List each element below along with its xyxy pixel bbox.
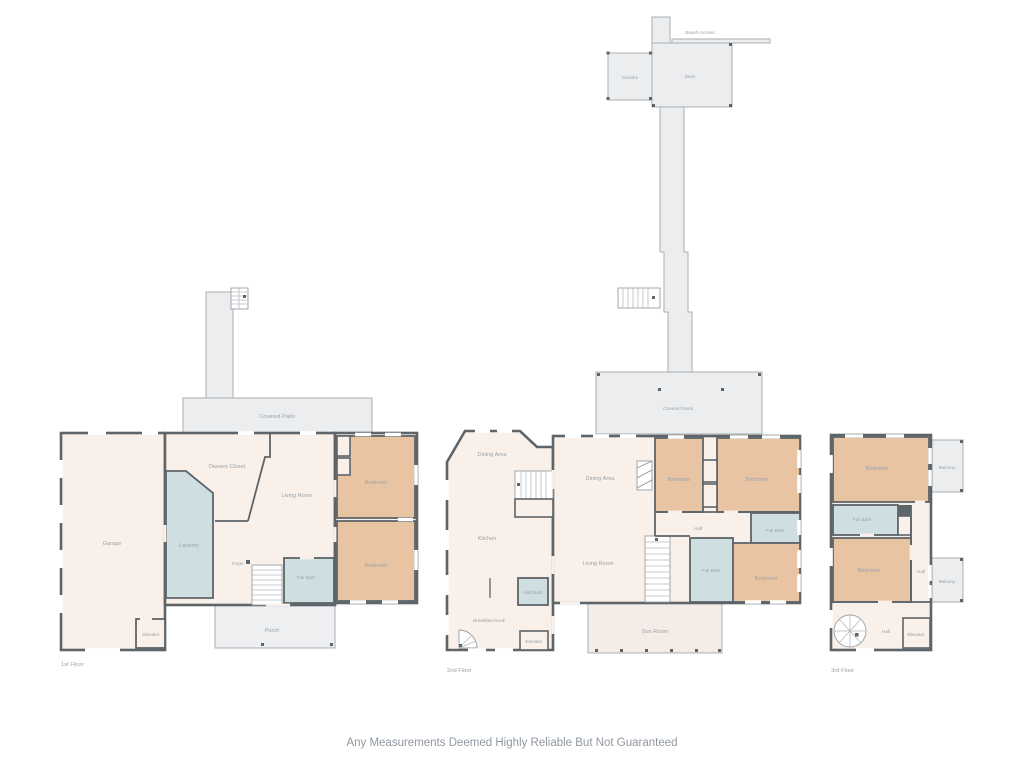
- foyer-label: Foyer: [232, 561, 244, 566]
- hall-label: Hall: [694, 526, 702, 531]
- balcony-post: [960, 599, 963, 602]
- bedroom-bottom-room: [733, 543, 800, 602]
- dining-area-label: Dining Area: [586, 476, 616, 482]
- elevator-label: Elevator: [525, 639, 543, 644]
- deck-label: Deck: [685, 74, 696, 79]
- deck-post: [649, 52, 652, 55]
- deck-post: [649, 97, 652, 100]
- bedroom-right-room: [717, 438, 800, 512]
- bedroom-label: Bedroom: [365, 480, 388, 486]
- fireplace: [637, 461, 652, 490]
- porch-post: [261, 643, 264, 646]
- sunroom-post: [620, 649, 623, 652]
- spiral-staircase: [834, 615, 866, 647]
- staircase: [252, 565, 282, 605]
- walkway-stair: [618, 288, 660, 308]
- floor2-name: 2nd Floor: [447, 668, 472, 674]
- sunroom-post: [695, 649, 698, 652]
- garage-label: Garage: [103, 541, 122, 547]
- beach-access-walk: [652, 17, 670, 45]
- deck-post: [652, 104, 655, 107]
- porch-label: Porch: [265, 628, 280, 634]
- laundry-room: [166, 471, 213, 598]
- sunroom-post: [595, 649, 598, 652]
- center-staircase: [645, 536, 670, 602]
- deck-post: [729, 43, 732, 46]
- closet: [703, 484, 717, 507]
- full-bath-room: [284, 558, 334, 603]
- balcony-post: [960, 489, 963, 492]
- balcony-top-label: Balcony: [939, 465, 956, 470]
- balcony-post: [960, 558, 963, 561]
- deck-walkway: [660, 107, 692, 374]
- hall-right-label: Hall: [917, 569, 925, 574]
- sun-room-label: Sun Room: [642, 629, 669, 635]
- deck-post: [607, 97, 610, 100]
- patio-walkway: [206, 292, 233, 399]
- beach-path: [672, 39, 770, 43]
- breakfast-nook-label: Breakfast Nook: [473, 618, 506, 623]
- sunroom-post: [718, 649, 721, 652]
- third-floor-plan: Bedroom Balcony Full Bath Bedroom Hall B…: [831, 435, 963, 674]
- beach-access-label: Beach Access: [685, 30, 715, 35]
- deck-post: [607, 52, 610, 55]
- patio-stair: [231, 288, 248, 309]
- covered-deck: [596, 372, 762, 434]
- sunroom-post: [645, 649, 648, 652]
- elevator-label: Elevator: [142, 632, 160, 637]
- covered-deck-label: Covered Deck: [663, 406, 693, 411]
- stair-closet: [515, 499, 553, 517]
- closet: [703, 460, 717, 482]
- closet: [337, 436, 350, 456]
- second-floor-plan: Beach Access Gazebo Deck Covered De: [447, 17, 800, 674]
- full-bath-label: Full Bath: [297, 575, 316, 580]
- elevator-label: Elevator: [907, 632, 925, 637]
- covered-deck-post: [721, 388, 724, 391]
- bedroom-bottom-label: Bedroom: [755, 576, 778, 582]
- living-room-label: Living Room: [582, 561, 613, 567]
- disclaimer-text: Any Measurements Deemed Highly Reliable …: [346, 737, 677, 749]
- living-room-label: Living Room: [281, 493, 312, 499]
- full-bath-lower-label: Full Bath: [702, 568, 721, 573]
- floor3-name: 3rd Floor: [831, 668, 854, 674]
- bedroom-bottom-room: [337, 521, 415, 601]
- bedroom-right-label: Bedroom: [746, 477, 769, 483]
- covered-deck-post: [758, 373, 761, 376]
- upper-staircase: [515, 471, 553, 499]
- floorplan-svg: Covered Patio: [0, 0, 1024, 768]
- porch: [215, 605, 335, 648]
- bedroom-top-label: Bedroom: [866, 466, 889, 472]
- balcony-post: [960, 440, 963, 443]
- gazebo-label: Gazebo: [622, 75, 639, 80]
- first-floor-plan: Covered Patio: [61, 288, 417, 668]
- stair-post: [243, 295, 246, 298]
- bedroom-label: Bedroom: [365, 563, 388, 569]
- dining-area-left-label: Dining Area: [478, 452, 508, 458]
- owners-closet-label: Owners Closet: [209, 464, 246, 470]
- closet: [898, 516, 911, 535]
- porch-post: [330, 643, 333, 646]
- bedroom-left-label: Bedroom: [668, 477, 691, 483]
- foyer-post: [246, 560, 250, 564]
- bedroom-left-room: [655, 438, 703, 512]
- floor1-name: 1st Floor: [61, 662, 84, 668]
- covered-deck-post: [658, 388, 661, 391]
- closet: [337, 458, 350, 475]
- sunroom-post: [670, 649, 673, 652]
- bedroom-bottom-label: Bedroom: [858, 568, 881, 574]
- chase: [898, 505, 911, 516]
- kitchen-label: Kitchen: [478, 536, 497, 542]
- half-bath-label: Half Bath: [523, 590, 543, 595]
- balcony-bottom-label: Balcony: [939, 579, 956, 584]
- sun-room: [588, 603, 722, 653]
- floorplan-page: Covered Patio: [0, 0, 1024, 768]
- covered-deck-post: [597, 373, 600, 376]
- laundry-label: Laundry: [179, 543, 199, 549]
- deck-post: [729, 104, 732, 107]
- full-bath-upper-label: Full Bath: [766, 528, 785, 533]
- hall-bottom-label: Hall: [882, 629, 890, 634]
- full-bath-label: Full Bath: [853, 517, 872, 522]
- covered-patio-label: Covered Patio: [259, 414, 294, 420]
